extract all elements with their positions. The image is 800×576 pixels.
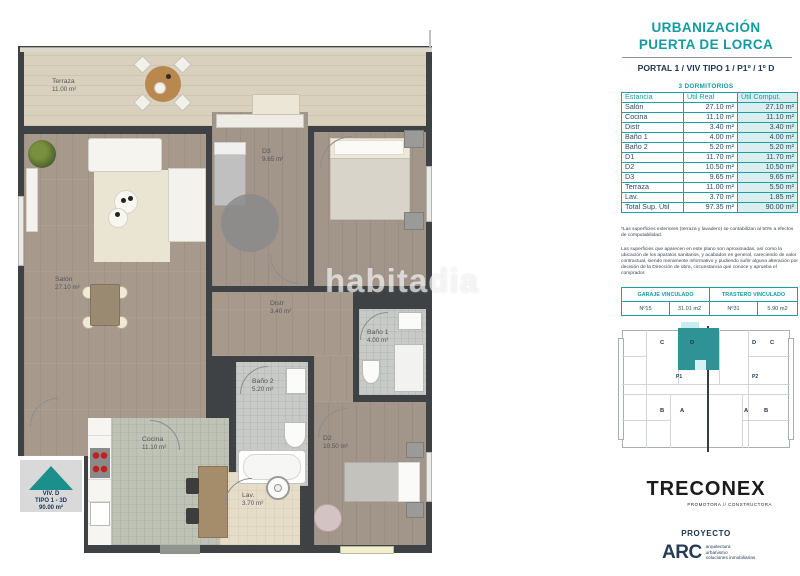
room-label-distr: Distr 3.40 m² bbox=[270, 300, 291, 316]
terrace-table-plate bbox=[154, 82, 166, 94]
plant bbox=[28, 140, 56, 168]
toilet-bano1 bbox=[362, 360, 380, 384]
nightstand bbox=[404, 130, 424, 148]
linked-values-row: Nº15 31.01 m2 Nº31 5.90 m2 bbox=[622, 302, 798, 316]
portal-label-1: P1 bbox=[676, 374, 682, 380]
kitchen-chair bbox=[186, 508, 199, 524]
window-d2-side bbox=[426, 452, 432, 502]
terrace-railing bbox=[20, 47, 432, 52]
table-row: Lav.3.70 m²1.85 m² bbox=[622, 193, 798, 203]
hob bbox=[90, 448, 110, 478]
linked-header-row: GARAJE VINCULADO TRASTERO VINCULADO bbox=[622, 288, 798, 302]
unit-letter-a2: A bbox=[744, 408, 748, 414]
unit-letter-c1: C bbox=[660, 340, 664, 346]
pillow-d3 bbox=[214, 142, 246, 155]
table-row: Cocina11.10 m²11.10 m² bbox=[622, 113, 798, 123]
rug-d3 bbox=[221, 194, 279, 252]
footnote-exterior-surfaces: *Las superficies exteriores (terraza y l… bbox=[621, 227, 798, 239]
dining-table bbox=[90, 284, 120, 326]
developer-logo: TRECONEX bbox=[612, 478, 800, 501]
table-row: D111.70 m²11.70 m² bbox=[622, 153, 798, 163]
developer-tagline: PROMOTORA // CONSTRUCTORA bbox=[652, 502, 772, 507]
key-plan: C D D C P1 P2 B A A B bbox=[618, 322, 796, 458]
room-line bbox=[742, 420, 790, 421]
unit-letter-d2: D bbox=[752, 340, 756, 346]
storage-header: TRASTERO VINCULADO bbox=[710, 288, 798, 302]
unit-subtitle: PORTAL 1 / VIV TIPO 1 / P1º / 1º D bbox=[612, 63, 800, 73]
project-label: PROYECTO bbox=[612, 529, 800, 538]
coffee-table-dots bbox=[121, 198, 126, 203]
party-wall-line bbox=[429, 30, 431, 48]
table-row: Terraza11.00 m²5.50 m² bbox=[622, 183, 798, 193]
table-row: Distr3.40 m²3.40 m² bbox=[622, 123, 798, 133]
unit-divider bbox=[719, 330, 720, 384]
area-table-header: Estancia Útil Real Útil Comput. bbox=[622, 93, 798, 103]
unit-letter-b1: B bbox=[660, 408, 664, 414]
title-divider bbox=[622, 57, 792, 58]
table-total-row: Total Sup. Útil97.35 m²90.00 m² bbox=[622, 203, 798, 213]
architect-tagline: arquitectura urbanismo soluciones inmobi… bbox=[706, 544, 756, 561]
badge-line2: TIPO 1 - 3D bbox=[20, 498, 82, 505]
window-left bbox=[18, 196, 24, 266]
unit-divider bbox=[748, 330, 749, 448]
floor-plan: Terraza 11.00 m² Salón 27.10 m² D3 9.65 … bbox=[0, 0, 612, 576]
blanket-d2 bbox=[344, 462, 400, 502]
room-line bbox=[622, 420, 670, 421]
tv-unit bbox=[26, 168, 38, 232]
nightstand bbox=[404, 212, 424, 230]
window-sill-d2 bbox=[340, 546, 394, 554]
garage-area: 31.01 m2 bbox=[670, 302, 710, 316]
entry-badge: VIV. D TIPO 1 - 3D 90.00 m² bbox=[20, 460, 82, 512]
pillow-d2 bbox=[398, 462, 420, 502]
garage-number: Nº15 bbox=[622, 302, 670, 316]
window-d1 bbox=[426, 166, 432, 222]
corridor-extension bbox=[314, 356, 353, 402]
table-row: D39.65 m²9.65 m² bbox=[622, 173, 798, 183]
sink-bano2 bbox=[286, 368, 306, 394]
badge-line3: 90.00 m² bbox=[20, 505, 82, 512]
unit-letter-b2: B bbox=[764, 408, 768, 414]
portal-label-2: P2 bbox=[752, 374, 758, 380]
toilet-bano2 bbox=[284, 422, 306, 448]
sink-bano1 bbox=[398, 312, 422, 330]
architect-name: ARC bbox=[662, 543, 702, 562]
room-line bbox=[622, 356, 646, 357]
kitchen-chair bbox=[186, 478, 199, 494]
corridor-line bbox=[622, 384, 790, 385]
garage-header: GARAJE VINCULADO bbox=[622, 288, 710, 302]
storage-area: 5.90 m2 bbox=[758, 302, 798, 316]
nightstand bbox=[406, 502, 424, 518]
washing-machine-drum bbox=[274, 484, 282, 492]
unit-letter-d1: D bbox=[690, 340, 694, 346]
table-row: Baño 25.20 m²5.20 m² bbox=[622, 143, 798, 153]
unit-divider bbox=[742, 394, 743, 448]
room-label-terraza: Terraza 11.00 m² bbox=[52, 78, 76, 94]
unit-divider bbox=[646, 330, 647, 448]
coffee-table bbox=[108, 208, 128, 228]
sofa bbox=[88, 138, 162, 172]
kitchen-sink bbox=[90, 502, 110, 526]
sideboard bbox=[168, 168, 206, 242]
building-left-cap bbox=[618, 338, 624, 440]
room-distr: Distr 3.40 m² bbox=[212, 292, 353, 356]
table-row: D210.50 m²10.50 m² bbox=[622, 163, 798, 173]
room-line bbox=[749, 356, 790, 357]
building-right-cap bbox=[788, 338, 794, 440]
col-util-real: Útil Real bbox=[684, 93, 738, 103]
col-util-comput: Útil Comput. bbox=[738, 93, 798, 103]
bedrooms-label: 3 DORMITORIOS bbox=[612, 83, 800, 90]
unit-divider bbox=[670, 394, 671, 448]
col-estancia: Estancia bbox=[622, 93, 684, 103]
watermark: habitadia bbox=[325, 262, 505, 300]
shower-bano1 bbox=[394, 344, 424, 392]
architect-logo: ARC arquitectura urbanismo soluciones in… bbox=[662, 543, 755, 562]
terrace-table-dot bbox=[166, 74, 171, 79]
storage-number: Nº31 bbox=[710, 302, 758, 316]
room-label-salon: Salón 27.10 m² bbox=[55, 276, 80, 292]
table-row: Salón27.10 m²27.10 m² bbox=[622, 103, 798, 113]
badge-line1: VIV. D bbox=[20, 491, 82, 498]
page-title-line1: URBANIZACIÓN bbox=[612, 20, 800, 35]
unit-letter-c2: C bbox=[770, 340, 774, 346]
unit-letter-a1: A bbox=[680, 408, 684, 414]
coffee-table-dots bbox=[115, 212, 120, 217]
keyplan-unit-notch bbox=[695, 360, 706, 370]
pouf bbox=[314, 504, 342, 532]
corridor-line bbox=[622, 394, 790, 395]
footnote-disclaimer: Las superficies que aparecen en este pla… bbox=[621, 247, 798, 277]
info-panel: URBANIZACIÓN PUERTA DE LORCA PORTAL 1 / … bbox=[612, 0, 800, 576]
table-row: Baño 14.00 m²4.00 m² bbox=[622, 133, 798, 143]
rug-salon bbox=[94, 170, 170, 262]
room-label-d3: D3 9.65 m² bbox=[262, 148, 283, 164]
wardrobe-d3 bbox=[216, 114, 304, 128]
entry-mat bbox=[160, 545, 200, 554]
linked-annexes-table: GARAJE VINCULADO TRASTERO VINCULADO Nº15… bbox=[621, 287, 798, 316]
entry-arrow-icon bbox=[29, 466, 73, 490]
entry-zone: VIV. D TIPO 1 - 3D 90.00 m² bbox=[14, 456, 84, 553]
area-table: Estancia Útil Real Útil Comput. Salón27.… bbox=[621, 92, 798, 213]
coffee-table-dots bbox=[128, 196, 133, 201]
page-title-line2: PUERTA DE LORCA bbox=[612, 37, 800, 52]
brochure-page: Terraza 11.00 m² Salón 27.10 m² D3 9.65 … bbox=[0, 0, 800, 576]
nightstand bbox=[406, 442, 424, 458]
